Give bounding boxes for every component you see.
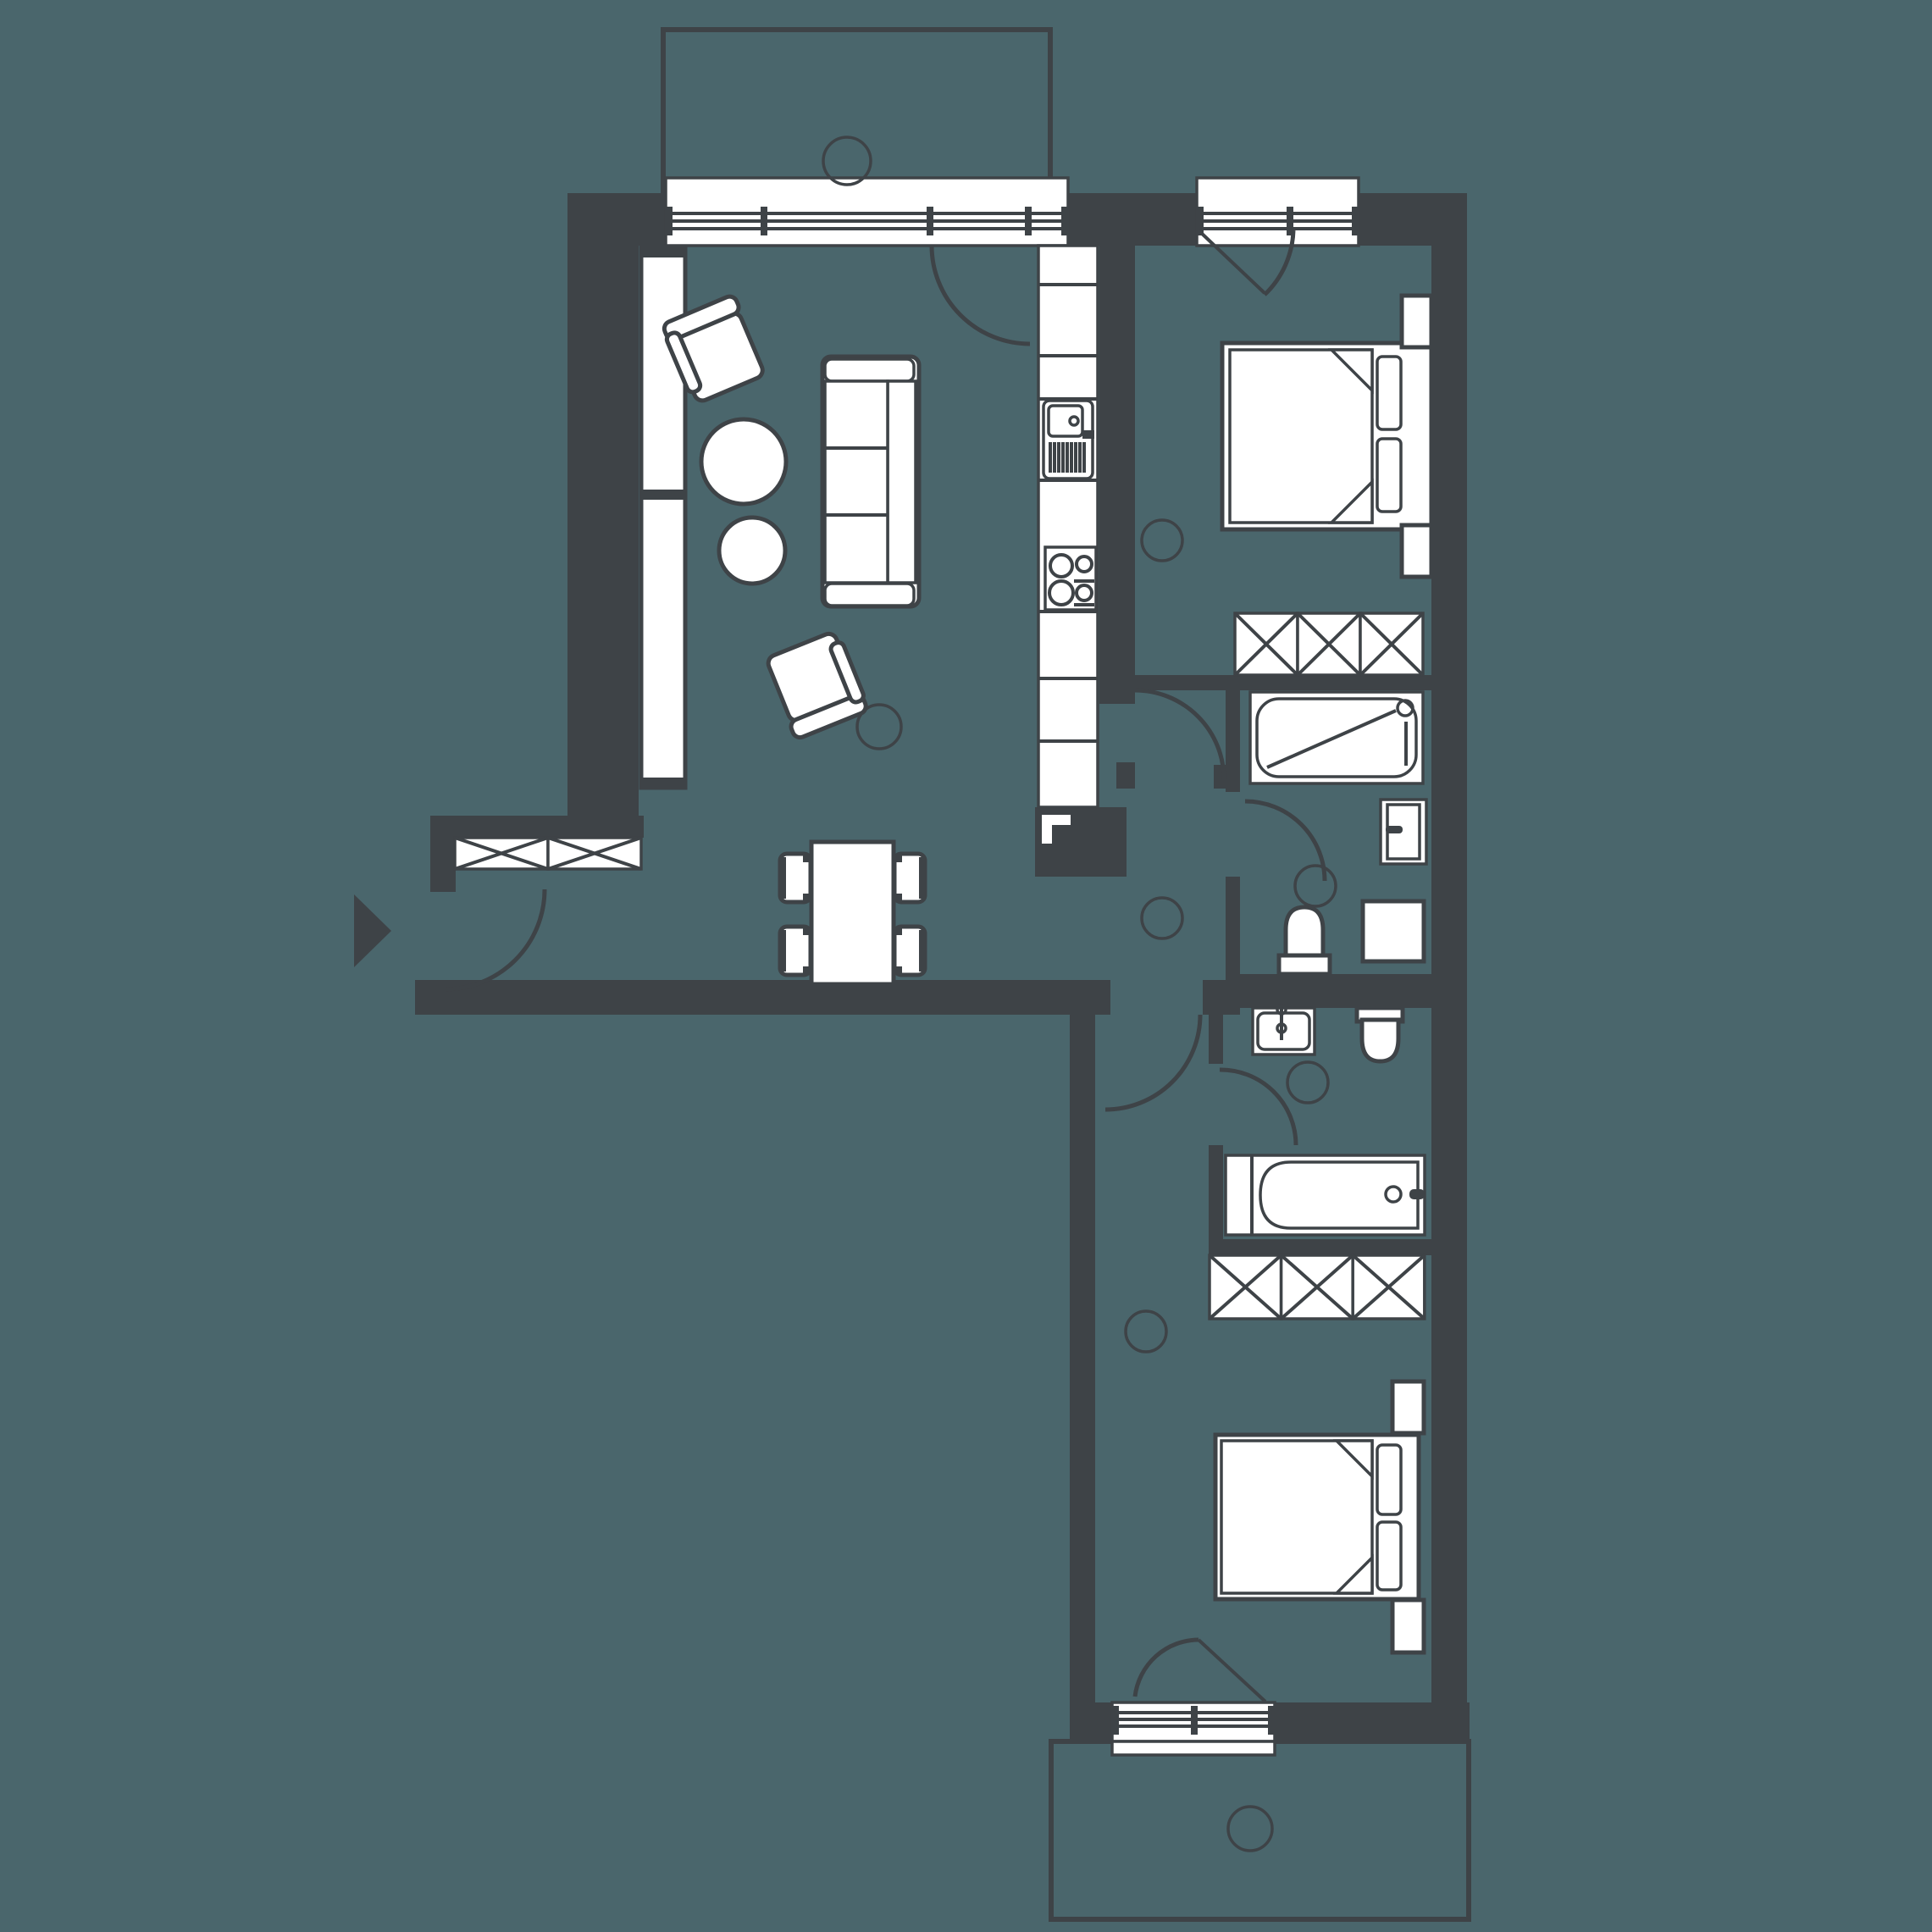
balcony-bottom xyxy=(1051,1741,1469,1919)
wall-bathroom-divider xyxy=(1226,974,1467,1008)
entry-direction-arrow xyxy=(354,894,391,967)
window-tick xyxy=(1025,207,1032,235)
sofa-seat xyxy=(825,381,888,583)
sofa xyxy=(822,357,919,606)
sofa-armrest-top xyxy=(825,359,914,381)
wall-vestibule-top xyxy=(430,816,644,838)
living-room-furniture xyxy=(641,247,919,788)
ceiling-light-inner-hall xyxy=(1142,898,1182,938)
bed-2 xyxy=(1215,1435,1419,1599)
bathtub-faucet xyxy=(1409,1189,1425,1199)
wall-stub-d1-left xyxy=(1116,762,1135,789)
bathroom-cabinet xyxy=(1381,800,1426,864)
bedroom-2-furniture xyxy=(1215,1381,1424,1652)
toilet-bowl xyxy=(1362,1020,1398,1061)
washing-machine xyxy=(1363,901,1424,961)
bathtub-inner xyxy=(1260,1162,1418,1228)
window-tick xyxy=(1352,207,1359,235)
nightstand xyxy=(1392,1600,1424,1652)
bed-pillow xyxy=(1377,1522,1401,1590)
wall-living-left xyxy=(567,246,639,816)
chair-back xyxy=(780,857,786,899)
ceiling-light-bathroom-2 xyxy=(1287,1062,1328,1103)
round-side-table xyxy=(719,518,785,584)
ceiling-light-balcony-bottom xyxy=(1228,1807,1272,1851)
wall-bedroom1-bottom xyxy=(1135,675,1431,690)
window-tick xyxy=(1061,207,1068,235)
living-balcony-door-swing-arc xyxy=(932,246,1030,344)
cabinet-handle xyxy=(1386,826,1403,833)
window-tick xyxy=(1191,1706,1198,1735)
bed-mattress xyxy=(1230,350,1372,523)
bathroom2-door-swing-arc xyxy=(1220,1070,1296,1145)
bed-pillow xyxy=(1377,357,1401,429)
ceiling-light-bedroom-1 xyxy=(1142,520,1182,561)
ceiling-light-bedroom-2 xyxy=(1126,1311,1166,1352)
corridor-door-swing-arc xyxy=(1105,1015,1200,1110)
wall-bathroom2-west-lower xyxy=(1209,1145,1223,1255)
toilet-1 xyxy=(1279,907,1330,974)
wash-basin xyxy=(1253,1004,1315,1055)
sideboard-tick xyxy=(641,490,685,500)
dining-chair xyxy=(780,854,811,902)
bed-mattress xyxy=(1221,1441,1372,1593)
window-tick xyxy=(927,207,933,235)
toilet-bowl xyxy=(1286,907,1323,960)
dining-chair xyxy=(894,854,925,902)
wall-corridor-left xyxy=(1070,980,1095,1705)
nightstand xyxy=(1392,1381,1424,1433)
armchair-2 xyxy=(763,630,869,740)
bed-1 xyxy=(1222,343,1431,529)
balcony-bottom-outline xyxy=(1051,1741,1469,1919)
wall-bathroom1-west-lower xyxy=(1226,877,1240,974)
chair-back xyxy=(919,930,925,972)
bathroom-1-fixtures xyxy=(1250,692,1426,974)
bedroom1-wardrobe xyxy=(1235,613,1423,675)
wall-right-outer xyxy=(1431,193,1467,1741)
kitchen-counter xyxy=(1038,246,1098,807)
ceiling-light-bathroom-1 xyxy=(1295,866,1336,906)
bathtub-1 xyxy=(1250,692,1423,783)
toilet-2 xyxy=(1357,1008,1403,1061)
bedroom2-wardrobe xyxy=(1210,1255,1425,1319)
sofa-backrest xyxy=(888,381,916,583)
bed-pillow xyxy=(1377,1445,1401,1514)
bathtub-2 xyxy=(1226,1155,1425,1235)
chair-back xyxy=(919,857,925,899)
floor-plan-canvas xyxy=(0,0,1932,1932)
bathroom1-door-swing-arc xyxy=(1245,801,1325,881)
nightstand xyxy=(1402,525,1431,577)
entry-closet xyxy=(455,838,641,869)
wall-bathroom2-south xyxy=(1209,1239,1467,1255)
balcony-top xyxy=(663,30,1050,197)
sofa-armrest-bottom xyxy=(825,584,914,606)
sink-tap-base xyxy=(1082,430,1094,439)
wall-bathroom1-west-upper xyxy=(1226,690,1240,792)
entry-door-swing-arc xyxy=(445,889,545,989)
bathroom-2-fixtures xyxy=(1226,1004,1425,1235)
nightstand xyxy=(1402,296,1431,347)
wall-bathroom2-west-upper xyxy=(1209,1008,1223,1064)
chair-back xyxy=(780,930,786,972)
round-coffee-table xyxy=(701,419,786,504)
bedroom-1-furniture xyxy=(1222,296,1431,577)
wall-vestibule-left xyxy=(430,838,456,892)
window-tick xyxy=(761,207,767,235)
window-tick xyxy=(1112,1706,1119,1735)
kitchenette xyxy=(1038,246,1098,844)
window-tick xyxy=(666,207,673,235)
kitchen-sink-unit xyxy=(1044,401,1094,479)
dining-chair xyxy=(780,927,811,975)
sideboard-tick xyxy=(641,778,685,788)
bed-pillow xyxy=(1377,439,1401,512)
window-tick xyxy=(1268,1706,1275,1735)
sink-drainer xyxy=(1050,442,1084,473)
sideboard-tick xyxy=(641,247,685,257)
floor-plan-page xyxy=(0,0,1932,1932)
bedroom1-door-swing-arc xyxy=(1135,690,1224,779)
wall-bedroom1-left xyxy=(1099,246,1135,704)
bedroom2-balcony-door-swing-arc xyxy=(1135,1640,1199,1697)
bedroom2-window-sill xyxy=(1112,1741,1275,1755)
kitchen-cooktop xyxy=(1045,547,1096,610)
wall-bottom-living xyxy=(415,980,1110,1015)
bedroom2-balcony-door-leaf xyxy=(1199,1640,1265,1702)
dining-chair xyxy=(894,927,925,975)
toilet-tank xyxy=(1279,955,1330,974)
dining-set xyxy=(780,842,925,984)
balcony-top-outline xyxy=(663,30,1050,197)
ceiling-light-living-area xyxy=(857,705,901,749)
dining-table xyxy=(811,842,894,984)
